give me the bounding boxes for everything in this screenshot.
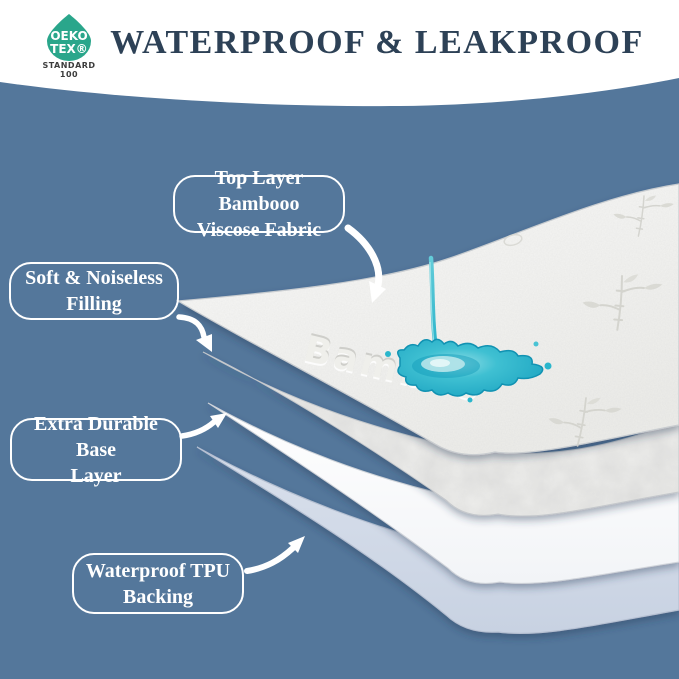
logo-number: 100 <box>60 70 78 79</box>
callout-base-layer: Extra Durable Base Layer <box>10 418 182 481</box>
oeko-tex-logo: OEKO TEX® STANDARD 100 <box>41 13 97 79</box>
callout-line: Viscose Fabric <box>181 217 337 243</box>
product-infographic: Bamboo Bamboo Bamboo <box>0 0 679 679</box>
callout-line: Extra Durable Base <box>18 411 174 463</box>
logo-line2: TEX® <box>50 42 88 56</box>
callout-filling: Soft & Noiseless Filling <box>9 262 179 320</box>
logo-line1: OEKO <box>50 29 87 43</box>
callout-line: Waterproof TPU <box>80 558 236 584</box>
page-title: WATERPROOF & LEAKPROOF <box>104 24 650 62</box>
callout-line: Layer <box>18 463 174 489</box>
callout-tpu-backing: Waterproof TPU Backing <box>72 553 244 614</box>
callout-top-layer: Top Layer Bambooo Viscose Fabric <box>173 175 345 233</box>
callout-line: Top Layer Bambooo <box>181 165 337 217</box>
callout-line: Soft & Noiseless <box>17 265 171 291</box>
callout-line: Filling <box>17 291 171 317</box>
callout-line: Backing <box>80 584 236 610</box>
logo-standard: STANDARD <box>42 61 95 70</box>
